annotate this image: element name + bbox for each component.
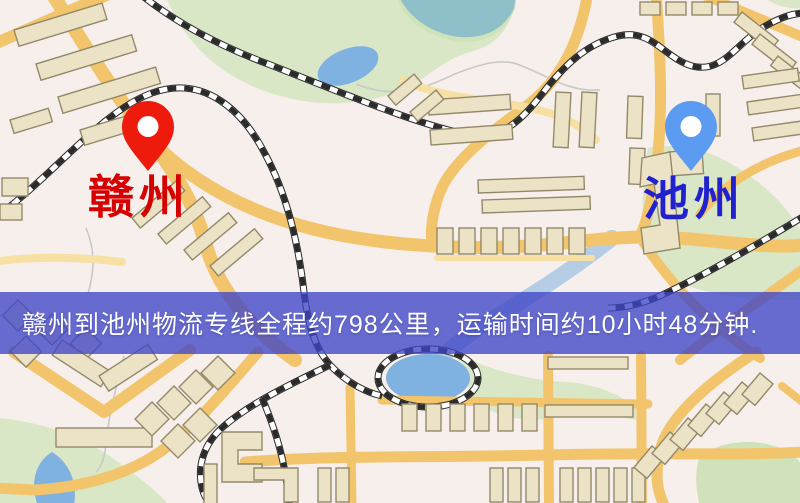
map-screenshot: 赣州 池州 赣州到池州物流专线全程约798公里，运输时间约10小时48分钟. <box>0 0 800 503</box>
destination-city-label: 池州 <box>599 177 789 223</box>
route-info-text: 赣州到池州物流专线全程约798公里，运输时间约10小时48分钟. <box>22 305 758 341</box>
origin-city-label: 赣州 <box>44 175 234 221</box>
route-info-banner: 赣州到池州物流专线全程约798公里，运输时间约10小时48分钟. <box>0 292 800 354</box>
map-canvas[interactable] <box>0 0 800 503</box>
